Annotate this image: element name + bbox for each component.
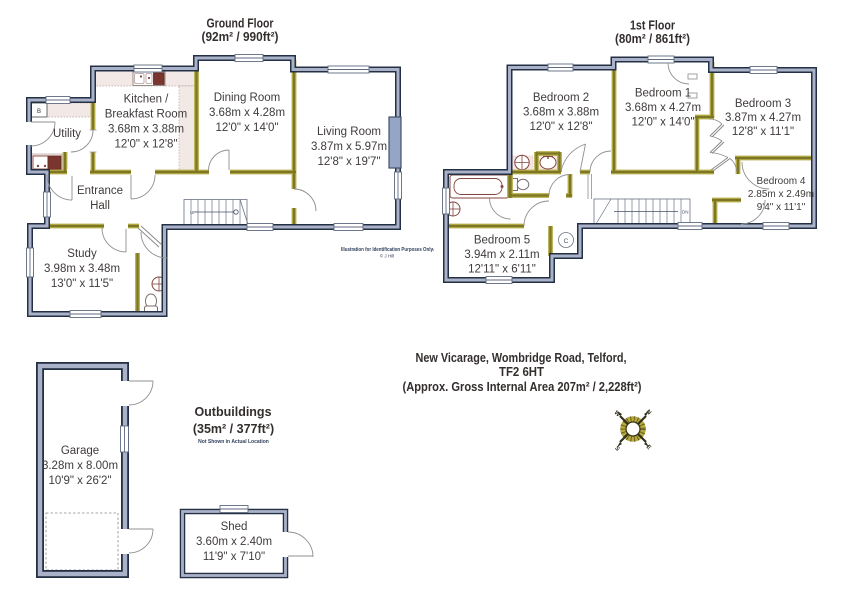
svg-text:© J Hill: © J Hill [380, 253, 394, 259]
svg-text:Outbuildings: Outbuildings [194, 405, 271, 419]
svg-text:12'8" x 19'7": 12'8" x 19'7" [317, 156, 380, 168]
svg-text:2.85m x 2.49m: 2.85m x 2.49m [748, 189, 814, 200]
svg-text:Dining Room: Dining Room [214, 92, 280, 104]
svg-text:(92m² / 990ft²): (92m² / 990ft²) [202, 30, 279, 44]
svg-text:3.87m x 4.27m: 3.87m x 4.27m [725, 112, 801, 124]
svg-text:12'0" x 14'0": 12'0" x 14'0" [215, 122, 278, 134]
svg-text:Study: Study [67, 248, 97, 260]
svg-text:3.68m x 4.27m: 3.68m x 4.27m [625, 102, 701, 114]
svg-text:(35m² / 377ft²): (35m² / 377ft²) [193, 422, 274, 436]
svg-text:10'9" x 26'2": 10'9" x 26'2" [48, 475, 111, 487]
svg-text:13'0" x 11'5": 13'0" x 11'5" [51, 278, 113, 290]
svg-text:11'9" x 7'10": 11'9" x 7'10" [203, 551, 265, 563]
svg-text:9'4" x 11'1": 9'4" x 11'1" [757, 202, 806, 213]
svg-text:Bedroom 4: Bedroom 4 [757, 176, 806, 187]
svg-text:Hall: Hall [90, 200, 110, 212]
svg-text:TF2 6HT: TF2 6HT [499, 365, 544, 379]
svg-text:1st Floor: 1st Floor [630, 19, 675, 33]
svg-text:Bedroom 5: Bedroom 5 [474, 235, 530, 247]
svg-text:12'0" x 12'8": 12'0" x 12'8" [529, 121, 592, 133]
svg-text:3.68m x 3.88m: 3.68m x 3.88m [523, 107, 599, 119]
svg-text:Ground Floor: Ground Floor [207, 17, 274, 31]
svg-text:Entrance: Entrance [77, 185, 123, 197]
svg-text:Bedroom 2: Bedroom 2 [533, 92, 589, 104]
svg-text:Breakfast Room: Breakfast Room [105, 109, 187, 121]
svg-text:Living Room: Living Room [317, 126, 381, 138]
svg-text:Bedroom 3: Bedroom 3 [735, 98, 791, 110]
svg-text:3.87m x 5.97m: 3.87m x 5.97m [311, 141, 387, 153]
svg-text:(Approx. Gross Internal Area 2: (Approx. Gross Internal Area 207m² / 2,2… [403, 380, 642, 394]
svg-text:3.28m x 8.00m: 3.28m x 8.00m [42, 460, 118, 472]
svg-text:Garage: Garage [61, 445, 99, 457]
svg-text:Shed: Shed [221, 521, 248, 533]
svg-text:3.60m x 2.40m: 3.60m x 2.40m [196, 536, 272, 548]
svg-text:B: B [37, 109, 41, 115]
svg-text:12'0" x 12'8": 12'0" x 12'8" [114, 139, 177, 151]
svg-text:(80m² / 861ft²): (80m² / 861ft²) [615, 32, 690, 46]
svg-text:UP: UP [190, 210, 196, 215]
svg-text:C: C [564, 238, 569, 245]
svg-text:12'11" x 6'11": 12'11" x 6'11" [468, 264, 536, 276]
svg-text:Utility: Utility [53, 128, 81, 140]
svg-text:Kitchen /: Kitchen / [124, 94, 170, 106]
svg-text:Illustration for Identificatio: Illustration for Identification Purposes… [341, 247, 433, 253]
svg-text:3.98m x 3.48m: 3.98m x 3.48m [44, 263, 120, 275]
svg-text:Not Shown in Actual Location: Not Shown in Actual Location [198, 439, 269, 445]
svg-text:DN: DN [682, 210, 689, 215]
svg-text:3.94m x 2.11m: 3.94m x 2.11m [464, 249, 539, 261]
svg-text:3.68m x 4.28m: 3.68m x 4.28m [209, 107, 285, 119]
svg-text:3.68m x 3.88m: 3.68m x 3.88m [108, 124, 184, 136]
svg-text:Bedroom 1: Bedroom 1 [635, 88, 691, 100]
svg-text:12'8" x 11'1": 12'8" x 11'1" [732, 126, 794, 138]
svg-text:12'0" x 14'0": 12'0" x 14'0" [631, 117, 694, 129]
svg-text:New Vicarage, Wombridge Road,: New Vicarage, Wombridge Road, Telford, [416, 351, 627, 365]
